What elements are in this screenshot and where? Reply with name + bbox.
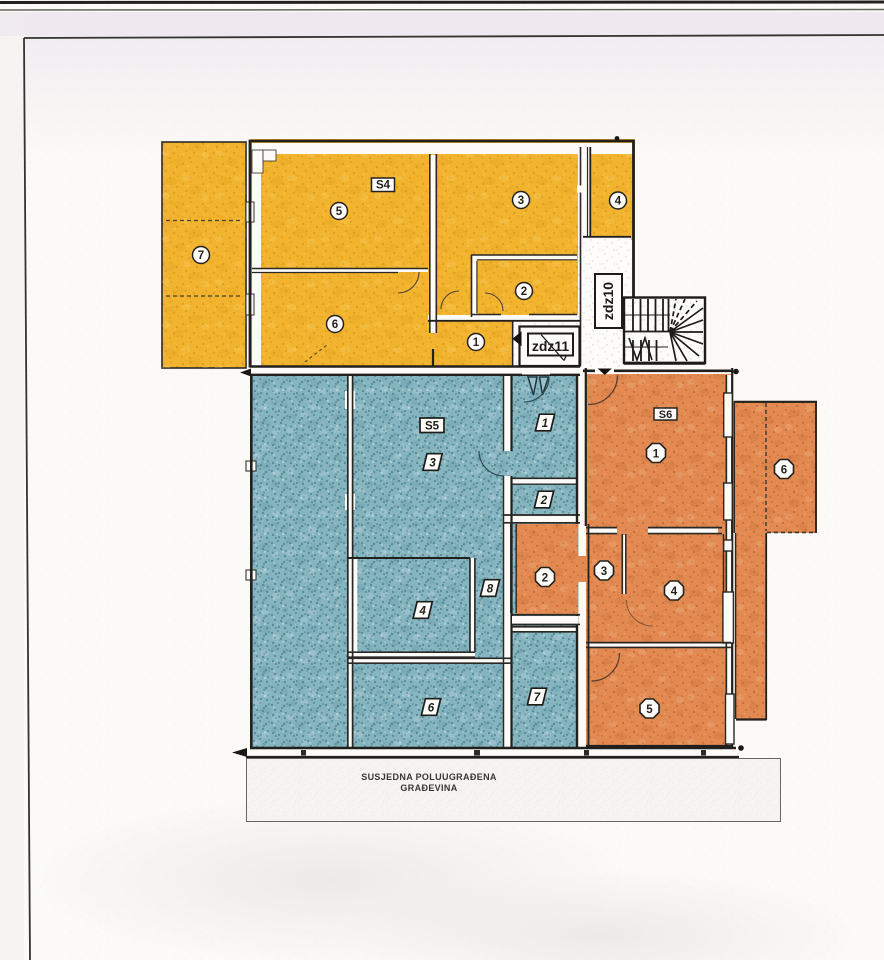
svg-text:5: 5 xyxy=(336,206,343,218)
svg-text:GRAĐEVINA: GRAĐEVINA xyxy=(400,783,457,793)
svg-text:1: 1 xyxy=(653,448,660,460)
svg-text:SUSJEDNA POLUUGRAĐENA: SUSJEDNA POLUUGRAĐENA xyxy=(361,772,497,782)
svg-text:5: 5 xyxy=(646,704,653,716)
svg-text:4: 4 xyxy=(671,586,678,598)
svg-text:S6: S6 xyxy=(659,409,672,421)
svg-text:zdz10: zdz10 xyxy=(600,282,616,320)
svg-text:zdz11: zdz11 xyxy=(532,338,570,354)
svg-text:1: 1 xyxy=(473,337,480,349)
svg-text:8: 8 xyxy=(487,583,494,595)
svg-text:2: 2 xyxy=(540,495,548,507)
svg-text:4: 4 xyxy=(418,605,426,617)
svg-text:3: 3 xyxy=(518,195,524,207)
svg-text:7: 7 xyxy=(534,692,541,704)
svg-text:7: 7 xyxy=(198,250,204,262)
svg-text:2: 2 xyxy=(521,286,527,298)
svg-text:4: 4 xyxy=(615,196,622,208)
svg-text:2: 2 xyxy=(542,572,548,584)
svg-text:S4: S4 xyxy=(376,180,391,192)
svg-text:6: 6 xyxy=(781,464,787,476)
svg-text:6: 6 xyxy=(332,319,338,331)
svg-text:1: 1 xyxy=(542,418,548,430)
svg-text:S5: S5 xyxy=(425,421,440,433)
svg-text:3: 3 xyxy=(429,457,436,469)
svg-text:3: 3 xyxy=(601,566,607,578)
svg-text:6: 6 xyxy=(428,702,435,714)
